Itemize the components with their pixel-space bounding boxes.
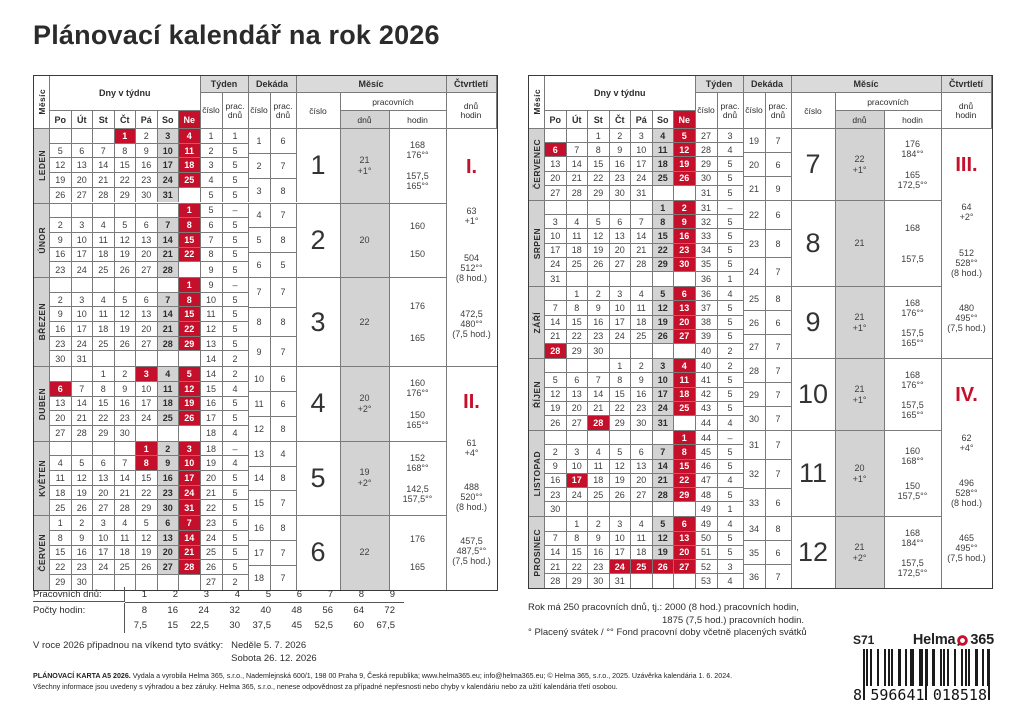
day-cell: 20	[631, 474, 653, 488]
week-row: 12131415161718425	[545, 388, 744, 402]
month-hours-group: 142,5157,5°°	[403, 484, 433, 504]
day-cell: 25	[674, 402, 696, 416]
week-number-cell: 44	[696, 416, 718, 430]
hours-8h-value: 48	[280, 605, 311, 616]
dekada-box: 128	[249, 417, 297, 441]
dekada-workdays-cell: 8	[271, 417, 297, 441]
day-cell	[674, 272, 696, 286]
day-cell: 7	[588, 373, 610, 387]
day-cell	[136, 426, 158, 441]
day-cell: 9	[50, 307, 72, 322]
day-cell: 29	[567, 344, 589, 358]
helma-logo-icon	[956, 634, 969, 647]
month-name: KVĚTEN	[34, 442, 50, 516]
workdays-count-value: 8	[342, 589, 373, 600]
week-workdays-cell: 5	[718, 258, 744, 272]
quarter-stat-line: 64	[961, 202, 971, 212]
calendar-table-second-half: MěsícDny v týdnuPoÚtStČtPáSoNeTýdenčíslo…	[528, 75, 993, 589]
year-summary-line1: Rok má 250 pracovních dnů, tj.: 2000 (8 …	[528, 602, 807, 615]
week-workdays-cell: 5	[223, 218, 249, 233]
header-day-6: So	[158, 111, 180, 129]
day-cell	[631, 201, 653, 215]
week-row: 144–	[545, 431, 744, 445]
header-mesic-summary: Měsíc	[792, 76, 942, 93]
day-cell: 3	[179, 442, 201, 457]
table-header: MěsícDny v týdnuPoÚtStČtPáSoNeTýdenčíslo…	[34, 76, 497, 129]
weekend-holiday-date: Sobota 26. 12. 2026	[231, 652, 317, 665]
week-workdays-cell: 4	[718, 574, 744, 588]
header-pracovnich-hodin: hodin	[885, 111, 942, 129]
day-cell: 27	[136, 337, 158, 352]
header-dny-v-tydnu: Dny v týdnu	[50, 76, 201, 111]
dekada-number-cell: 13	[249, 442, 271, 466]
dekada-box: 197	[744, 129, 792, 153]
dekada-workdays-cell: 7	[766, 460, 792, 488]
day-cell: 3	[610, 517, 632, 531]
day-cell: 7	[72, 382, 94, 397]
dekada-box: 348	[744, 517, 792, 541]
header-ctvrtleti: Čtvrtletí	[447, 76, 497, 93]
week-number-cell: 25	[201, 546, 223, 561]
month-hours-line: 142,5	[406, 484, 429, 494]
week-number-cell: 38	[696, 316, 718, 330]
day-cell: 9	[50, 233, 72, 248]
dekada-box: 367	[744, 565, 792, 588]
day-cell: 26	[136, 560, 158, 575]
quarter-stat-group: 496528°°(8 hod.)	[951, 478, 982, 508]
day-cell: 22	[136, 486, 158, 501]
week-workdays-cell: 4	[718, 287, 744, 301]
day-cell: 6	[136, 293, 158, 308]
header-day-1: Po	[545, 111, 567, 129]
quarter-stat-line: 61	[466, 438, 476, 448]
week-number-cell: 13	[201, 337, 223, 352]
day-cell: 17	[158, 158, 180, 173]
day-cell: 3	[567, 445, 589, 459]
day-cell: 7	[179, 516, 201, 531]
week-workdays-cell: 2	[718, 359, 744, 373]
week-row: 22232425262728265	[50, 560, 249, 575]
day-cell: 9	[545, 460, 567, 474]
month-number-cell: 7	[792, 129, 836, 200]
day-cell	[674, 502, 696, 516]
dekada-number-cell: 2	[249, 154, 271, 178]
month-hours-group: 152168°°	[406, 453, 428, 473]
week-workdays-cell: 4	[718, 474, 744, 488]
day-cell	[567, 502, 589, 516]
day-cell	[653, 431, 675, 445]
header-tyden: Týden	[201, 76, 249, 93]
header-mesic-rotated: Měsíc	[34, 76, 50, 129]
dekada-box: 297	[744, 383, 792, 407]
week-number-cell: 9	[201, 278, 223, 293]
dekada-number-cell: 4	[249, 204, 271, 228]
day-cell: 2	[631, 359, 653, 373]
week-row: 24252627282930355	[545, 258, 744, 272]
dekada-workdays-cell: 8	[766, 517, 792, 540]
dekada-workdays-cell: 6	[271, 367, 297, 391]
day-cell: 27	[567, 416, 589, 430]
quarter-stat-line: 512	[959, 248, 974, 258]
week-row: 18192021222324215	[50, 486, 249, 501]
month-name: DUBEN	[34, 367, 50, 441]
hours-8h-value: 56	[311, 605, 342, 616]
day-cell: 26	[588, 258, 610, 272]
month-block-květen: KVĚTEN12318–4567891019411121314151617205…	[34, 442, 447, 517]
dekada-number-cell: 26	[744, 311, 766, 334]
day-cell: 19	[50, 173, 72, 188]
day-cell: 5	[115, 293, 137, 308]
day-cell: 16	[545, 474, 567, 488]
imprint-line2: Všechny informace jsou uvedeny s výhrado…	[33, 682, 845, 693]
workdays-count-value: 4	[218, 589, 249, 600]
day-cell: 2	[136, 129, 158, 144]
day-cell	[115, 351, 137, 366]
month-workdays-line: 19	[359, 467, 369, 478]
quarter-label: IV.	[955, 384, 978, 407]
day-cell: 10	[567, 460, 589, 474]
dekada-workdays-cell: 5	[271, 253, 297, 277]
day-cell: 25	[567, 258, 589, 272]
workdays-hours-table: Pracovních dnů: 123456789 Počty hodin: 8…	[33, 587, 404, 633]
month-name: LEDEN	[34, 129, 50, 203]
day-cell: 8	[136, 456, 158, 471]
day-cell: 16	[158, 471, 180, 486]
day-cell: 23	[610, 172, 632, 186]
week-number-cell: 43	[696, 402, 718, 416]
day-cell: 18	[631, 546, 653, 560]
day-cell: 25	[588, 488, 610, 502]
month-workdays-line: 21	[854, 542, 864, 553]
week-workdays-cell: 5	[223, 293, 249, 308]
hours-8h-values-row: 81624324048566472	[125, 603, 404, 618]
day-cell: 18	[653, 157, 675, 171]
month-name: ZÁŘÍ	[529, 287, 545, 358]
month-workdays-cell: 22	[341, 278, 390, 366]
day-cell	[610, 431, 632, 445]
dekada-workdays-cell: 6	[766, 201, 792, 229]
workdays-count-value: 9	[373, 589, 404, 600]
header-tyden-cislo: číslo	[201, 93, 223, 129]
week-number-cell: 4	[201, 173, 223, 188]
week-row: 262728293031444	[545, 416, 744, 430]
month-number-cell: 9	[792, 287, 836, 358]
dekada-number-cell: 1	[249, 129, 271, 153]
quarter-stat-line: (8 hod.)	[456, 502, 487, 512]
day-cell	[674, 186, 696, 200]
month-block-září: ZÁŘÍ123456364789101112133751415161718192…	[529, 287, 942, 359]
day-cell: 14	[545, 546, 567, 560]
day-cell: 9	[115, 382, 137, 397]
day-cell: 5	[588, 215, 610, 229]
day-cell: 18	[115, 546, 137, 561]
week-row: 19202122232425435	[545, 402, 744, 416]
day-cell: 27	[674, 330, 696, 344]
week-number-cell: 41	[696, 373, 718, 387]
day-cell: 18	[158, 397, 180, 412]
month-workdays-line: 20	[359, 393, 369, 404]
dekada-box: 47	[249, 204, 297, 229]
quarter-stat-group: 512528°°(8 hod.)	[951, 248, 982, 278]
month-hours-group: 157,5172,5°°	[898, 558, 928, 578]
day-cell: 12	[588, 229, 610, 243]
week-workdays-cell: 5	[223, 560, 249, 575]
quarter-stat-line: 480	[959, 303, 974, 313]
day-cell	[72, 278, 94, 293]
day-cell: 1	[674, 431, 696, 445]
month-block-březen: BŘEZEN19–2345678105910111213141511516171…	[34, 278, 447, 367]
week-number-cell: 40	[696, 344, 718, 358]
week-number-cell: 26	[201, 560, 223, 575]
dekada-number-cell: 14	[249, 467, 271, 491]
day-cell: 13	[72, 158, 94, 173]
month-weeks: 12318–4567891019411121314151617205181920…	[50, 442, 249, 516]
month-hours-line: 157,5	[901, 328, 924, 338]
day-cell: 11	[93, 307, 115, 322]
day-cell: 26	[72, 500, 94, 515]
quarter-label: III.	[955, 154, 977, 177]
day-cell: 13	[93, 471, 115, 486]
day-cell: 20	[610, 244, 632, 258]
week-row: 26272829303155	[50, 188, 249, 203]
month-workdays-cell: 20+1°	[836, 431, 885, 516]
month-hours-cell: 168176°°157,5165°°	[885, 359, 942, 430]
day-cell	[158, 426, 180, 441]
month-workdays-line: 21	[854, 384, 864, 395]
month-hours-cell: 152168°°142,5157,5°°	[390, 442, 447, 516]
day-cell: 2	[545, 445, 567, 459]
day-cell: 20	[567, 402, 589, 416]
month-hours-group: 160176°°	[406, 378, 428, 398]
week-workdays-cell: 5	[223, 337, 249, 352]
day-cell: 6	[93, 456, 115, 471]
quarter-stat-line: 63	[466, 206, 476, 216]
week-number-cell: 19	[201, 456, 223, 471]
week-workdays-cell: 5	[718, 488, 744, 502]
week-workdays-cell: 5	[223, 144, 249, 159]
workdays-count-value: 2	[156, 589, 187, 600]
month-hours-line: 172,5°°	[898, 180, 928, 190]
day-cell: 10	[72, 233, 94, 248]
week-workdays-cell: 5	[223, 262, 249, 277]
month-number-cell: 1	[297, 129, 341, 203]
day-cell: 23	[631, 402, 653, 416]
day-cell: 27	[72, 188, 94, 203]
day-cell: 26	[674, 172, 696, 186]
workdays-row-label: Pracovních dnů:	[33, 587, 125, 602]
day-cell	[50, 367, 72, 382]
day-cell: 5	[179, 367, 201, 382]
quarter-stat-line: (7,5 hod.)	[947, 553, 986, 563]
day-cell	[93, 442, 115, 457]
day-cell: 24	[631, 172, 653, 186]
week-row: 1617181920212285	[50, 248, 249, 263]
day-cell	[136, 278, 158, 293]
week-workdays-cell: 5	[223, 546, 249, 561]
week-row: 45678910194	[50, 456, 249, 471]
quarter-cell: II.61+4°488520°°(8 hod.)457,5487,5°°(7,5…	[447, 366, 497, 589]
week-number-cell: 29	[696, 157, 718, 171]
month-dekady: 287297307	[744, 359, 792, 430]
day-cell	[588, 502, 610, 516]
dekada-box: 258	[744, 287, 792, 311]
day-cell: 14	[653, 460, 675, 474]
day-cell: 3	[158, 129, 180, 144]
header-day-6: So	[653, 111, 675, 129]
weekend-holidays-note: V roce 2026 připadnou na víkend tyto svá…	[33, 639, 317, 665]
month-name: PROSINEC	[529, 517, 545, 588]
day-cell	[179, 188, 201, 203]
day-cell: 30	[631, 416, 653, 430]
day-cell: 15	[179, 233, 201, 248]
month-workdays-cell: 21+1°	[341, 129, 390, 203]
day-cell: 8	[115, 144, 137, 159]
dekada-number-cell: 32	[744, 460, 766, 488]
quarter-stat-line: 480°°	[460, 319, 482, 329]
day-cell: 18	[567, 244, 589, 258]
hours-7-5h-value: 52,5	[311, 620, 342, 631]
month-hours-line: 165°°	[901, 338, 923, 348]
month-block-únor: ÚNOR15–234567865910111213141575161718192…	[34, 204, 447, 279]
day-cell	[567, 272, 589, 286]
dekada-box: 58	[249, 228, 297, 253]
quarter-stat-line: 504	[464, 253, 479, 263]
header-day-2: Út	[567, 111, 589, 129]
quarter-stat-line: (8 hod.)	[456, 273, 487, 283]
day-cell: 5	[136, 516, 158, 531]
dekada-workdays-cell: 6	[766, 541, 792, 564]
dekada-number-cell: 29	[744, 383, 766, 406]
day-cell: 19	[72, 486, 94, 501]
month-hours-group: 165172,5°°	[898, 170, 928, 190]
day-cell	[158, 278, 180, 293]
dekada-box: 157	[249, 491, 297, 515]
day-cell	[610, 201, 632, 215]
day-cell: 9	[588, 301, 610, 315]
month-number-cell: 10	[792, 359, 836, 430]
day-cell: 16	[631, 388, 653, 402]
day-cell: 5	[72, 456, 94, 471]
dekada-workdays-cell: 7	[766, 129, 792, 152]
header-ctvrtleti-dnu-hodin: dnů hodin	[942, 93, 992, 129]
month-hours-line: 168°°	[901, 456, 923, 466]
day-cell: 24	[136, 411, 158, 426]
quarter-stat-line: (8 hod.)	[951, 498, 982, 508]
dekada-workdays-cell: 9	[766, 177, 792, 200]
dekada-number-cell: 33	[744, 489, 766, 517]
day-cell: 2	[158, 442, 180, 457]
quarter-stat-line: 495°°	[955, 543, 977, 553]
dekada-number-cell: 6	[249, 253, 271, 277]
month-hours-line: 176	[410, 534, 425, 544]
day-cell: 20	[545, 172, 567, 186]
day-cell	[674, 574, 696, 588]
day-cell: 31	[179, 500, 201, 515]
month-workdays-line: 22	[854, 154, 864, 165]
month-workdays-cell: 19+2°	[341, 442, 390, 516]
day-cell: 25	[50, 500, 72, 515]
day-cell: 29	[179, 337, 201, 352]
month-hours-line: 152	[410, 453, 425, 463]
day-cell: 21	[545, 560, 567, 574]
day-cell: 6	[50, 382, 72, 397]
day-cell: 14	[588, 388, 610, 402]
day-cell	[545, 201, 567, 215]
week-workdays-cell: –	[223, 442, 249, 457]
week-number-cell: 6	[201, 218, 223, 233]
day-cell: 11	[115, 531, 137, 546]
dekada-number-cell: 3	[249, 179, 271, 203]
week-row: 1213141516171835	[50, 158, 249, 173]
week-row: 31361	[545, 272, 744, 286]
day-cell: 4	[115, 516, 137, 531]
week-workdays-cell: 5	[718, 229, 744, 243]
day-cell: 19	[545, 402, 567, 416]
day-cell: 28	[158, 262, 180, 277]
hours-7-5h-value: 7,5	[125, 620, 156, 631]
day-cell: 6	[567, 373, 589, 387]
day-cell: 5	[653, 517, 675, 531]
day-cell: 28	[545, 344, 567, 358]
week-workdays-cell: 2	[223, 367, 249, 382]
week-row: 15–	[50, 204, 249, 219]
day-cell: 5	[653, 287, 675, 301]
week-number-cell: 33	[696, 229, 718, 243]
dekada-box: 238	[744, 230, 792, 259]
week-row: 567891011415	[545, 373, 744, 387]
quarter-column: III.64+2°512528°°(8 hod.)480495°°(7,5 ho…	[942, 129, 992, 588]
day-cell: 24	[72, 337, 94, 352]
day-cell: 26	[115, 262, 137, 277]
dekada-box: 106	[249, 367, 297, 392]
dekada-workdays-cell: 8	[271, 179, 297, 203]
day-cell: 16	[115, 397, 137, 412]
day-cell: 28	[567, 186, 589, 200]
dekada-number-cell: 9	[249, 337, 271, 366]
week-number-cell: 42	[696, 388, 718, 402]
month-hours-group: 157,5165°°	[901, 328, 924, 348]
day-cell: 9	[610, 143, 632, 157]
day-cell: 23	[588, 330, 610, 344]
day-cell: 30	[158, 500, 180, 515]
hours-7-5h-value: 37,5	[249, 620, 280, 631]
week-workdays-cell: 3	[718, 560, 744, 574]
month-hours-line: 165	[410, 333, 425, 343]
page-title: Plánovací kalendář na rok 2026	[33, 20, 440, 51]
week-workdays-cell: 4	[223, 456, 249, 471]
day-cell: 1	[179, 204, 201, 219]
header-mesic-cislo: číslo	[792, 93, 836, 129]
month-hours-line: 160	[410, 378, 425, 388]
day-cell: 25	[631, 560, 653, 574]
month-hours-line: 172,5°°	[898, 568, 928, 578]
day-cell: 17	[653, 388, 675, 402]
day-cell	[588, 272, 610, 286]
day-cell: 19	[653, 316, 675, 330]
day-cell: 22	[610, 402, 632, 416]
dekada-number-cell: 8	[249, 308, 271, 337]
dekada-box: 327	[744, 460, 792, 489]
week-workdays-cell: 5	[718, 445, 744, 459]
dekada-workdays-cell: 7	[271, 491, 297, 515]
day-cell	[158, 351, 180, 366]
day-cell: 30	[674, 258, 696, 272]
year-summary-line2: 1875 (7,5 hod.) pracovních hodin.	[662, 615, 807, 628]
day-cell: 15	[93, 397, 115, 412]
day-cell: 24	[179, 486, 201, 501]
day-cell: 6	[631, 445, 653, 459]
month-workdays-line: +1°	[853, 323, 867, 334]
